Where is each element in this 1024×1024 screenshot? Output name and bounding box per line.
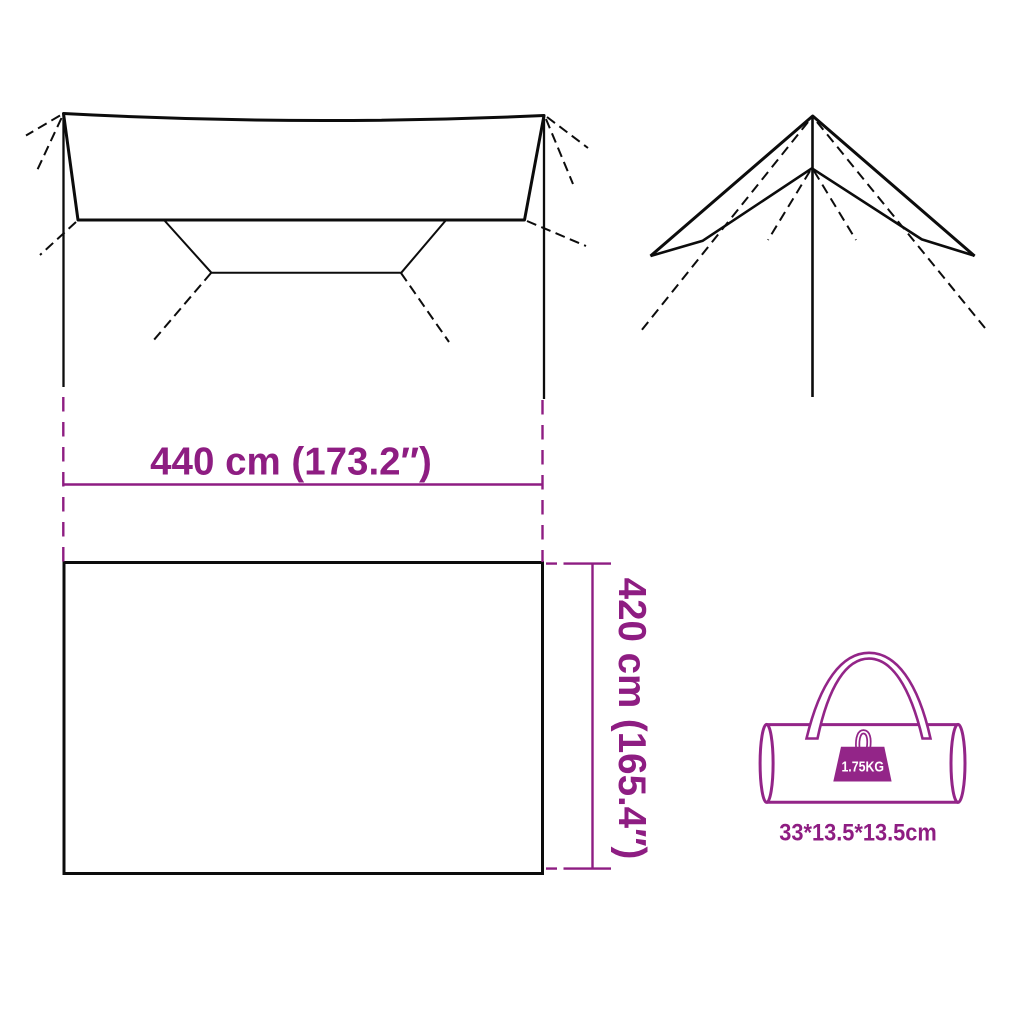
svg-text:440 cm (173.2″): 440 cm (173.2″)	[150, 441, 432, 484]
svg-text:420 cm (165.4″): 420 cm (165.4″)	[610, 578, 653, 860]
svg-text:33*13.5*13.5cm: 33*13.5*13.5cm	[779, 820, 937, 847]
svg-text:1.75KG: 1.75KG	[841, 759, 884, 776]
